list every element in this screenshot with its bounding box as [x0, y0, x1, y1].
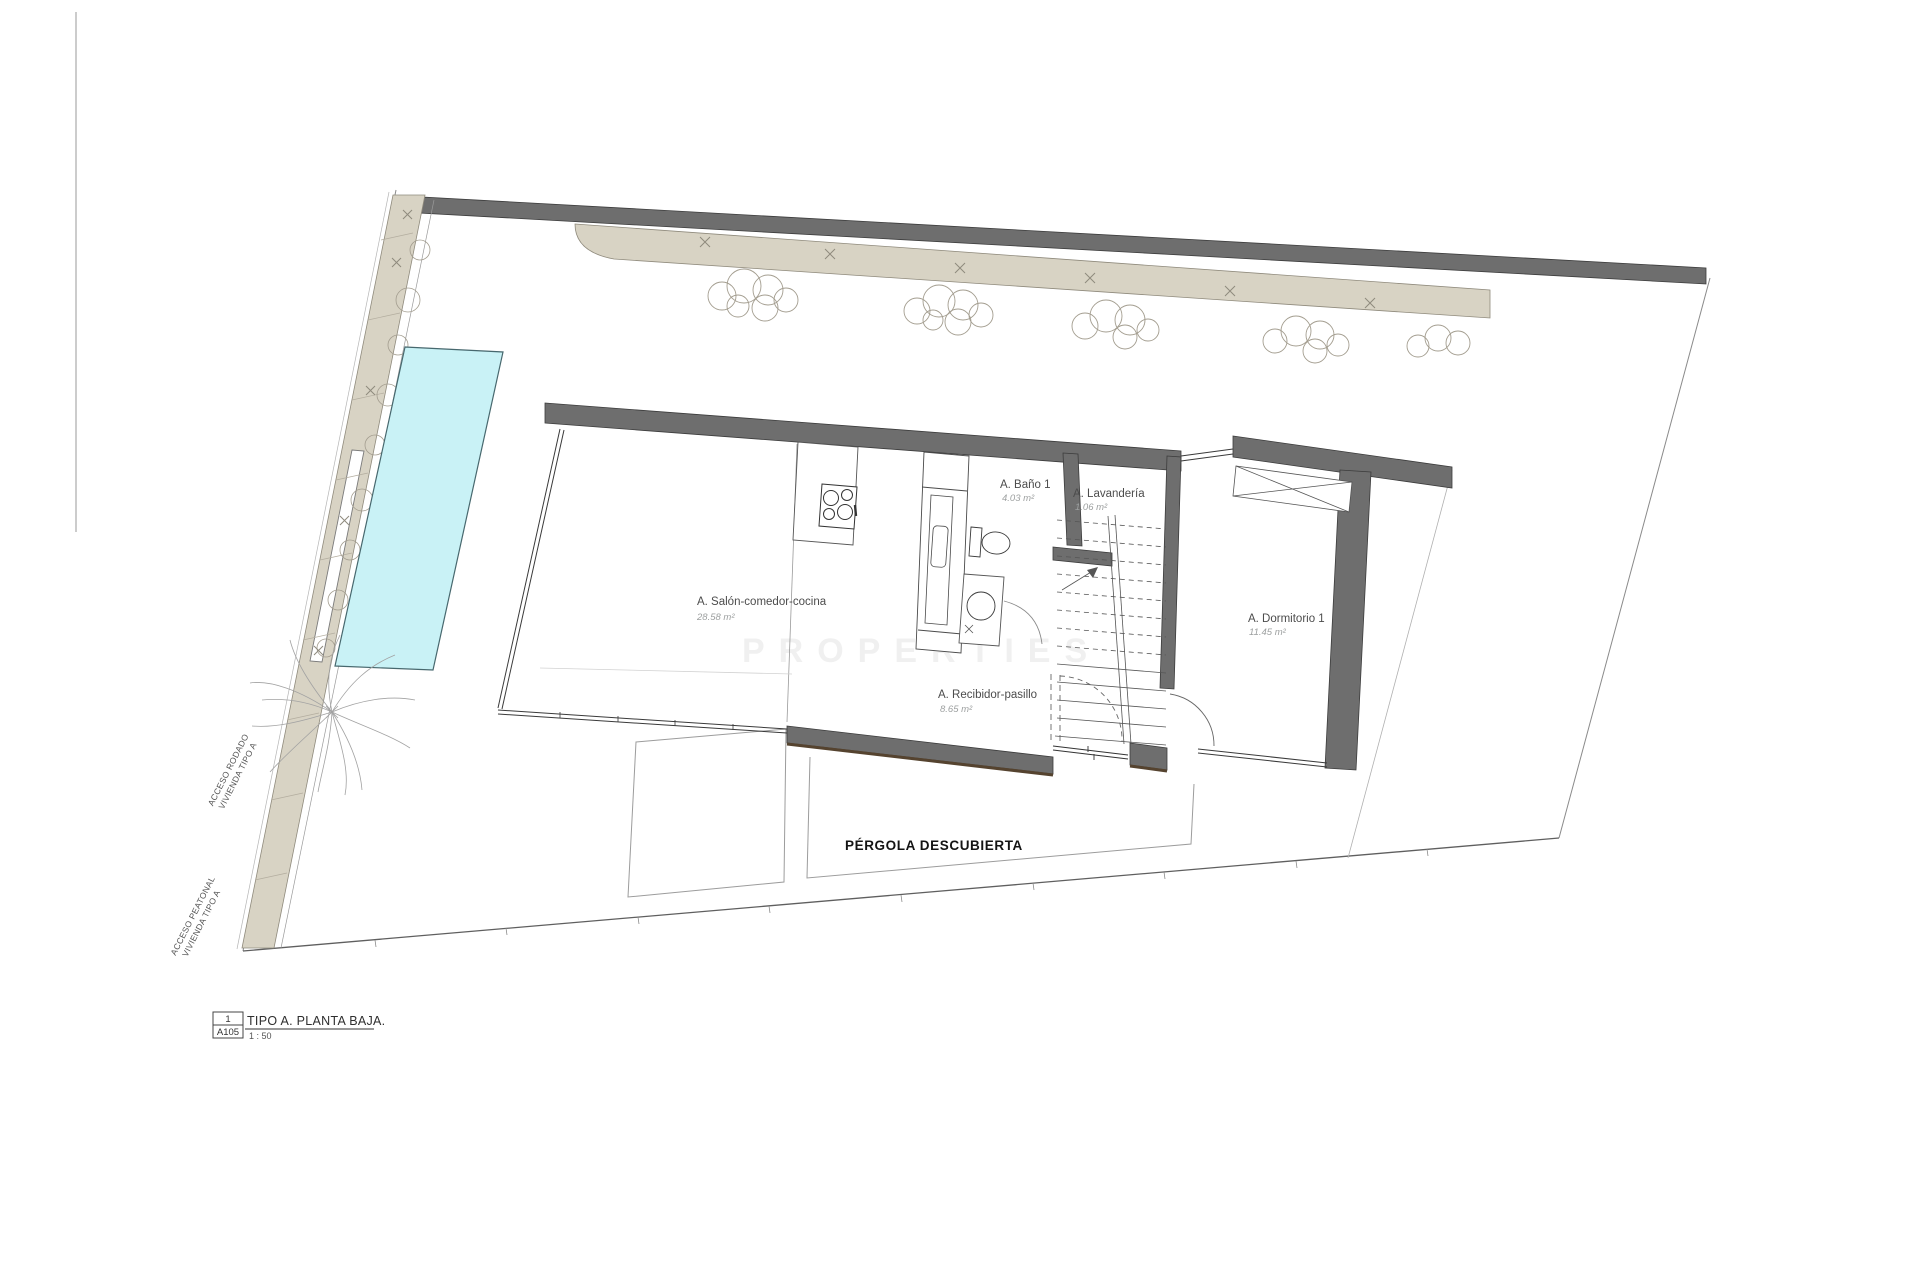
dormitorio-label: A. Dormitorio 1	[1248, 613, 1325, 625]
wardrobe	[1233, 466, 1352, 512]
dormitorio-area: 11.45 m²	[1249, 627, 1287, 638]
recibidor-label: A. Recibidor-pasillo	[938, 689, 1037, 701]
wall-salon-top	[545, 403, 1181, 471]
terrace-outline	[628, 729, 786, 897]
site-boundary-bottom	[243, 838, 1559, 951]
recibidor-area: 8.65 m²	[940, 704, 973, 715]
wall-stairs-right	[1160, 456, 1181, 689]
detail-number: 1	[225, 1014, 230, 1025]
cooktop	[819, 484, 857, 529]
lavanderia-label: A. Lavandería	[1073, 488, 1145, 500]
salon-area: 28.58 m²	[696, 612, 735, 623]
wall-dormitorio-right	[1325, 470, 1371, 770]
sink	[959, 574, 1004, 646]
floor-plan-canvas: PROPERTIES	[0, 0, 1920, 1280]
drawing-title: TIPO A. PLANTA BAJA.	[247, 1014, 385, 1028]
pergola-outline	[807, 757, 1194, 878]
windows	[498, 429, 1327, 767]
toilet	[969, 527, 1011, 557]
title-block: 1 A105 TIPO A. PLANTA BAJA. 1 : 50	[213, 1012, 385, 1041]
lavanderia-area: 1.06 m²	[1075, 502, 1108, 513]
sheet-number: A105	[217, 1027, 239, 1038]
bano-area: 4.03 m²	[1002, 493, 1035, 504]
salon-label: A. Salón-comedor-cocina	[697, 596, 827, 608]
drawing-scale: 1 : 50	[249, 1031, 272, 1041]
bano-label: A. Baño 1	[1000, 479, 1051, 491]
pergola-label: PÉRGOLA DESCUBIERTA	[845, 838, 1023, 853]
drawing-sheet: PROPERTIES	[0, 0, 1920, 1280]
